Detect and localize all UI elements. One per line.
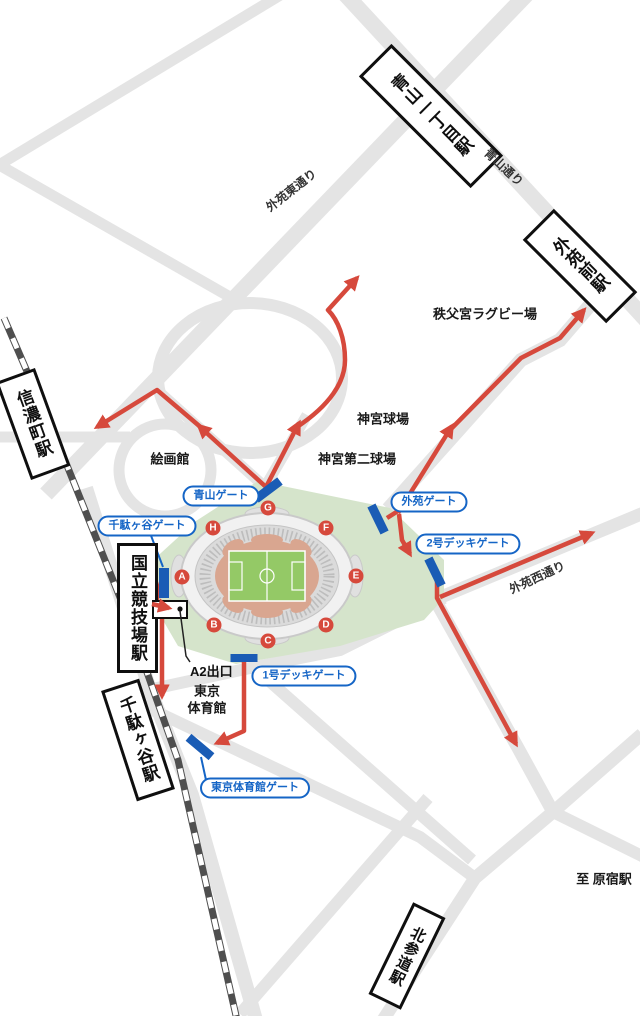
road-northwest xyxy=(0,0,282,168)
gate-bar-sendagaya xyxy=(159,568,169,598)
a2-exit-label: A2出口 xyxy=(190,661,233,680)
stadium-gate-h: H xyxy=(206,521,221,536)
road-gaien-higashi-dori xyxy=(46,0,527,494)
label-to-harajuku: 至 原宿駅 xyxy=(576,869,632,888)
gate-pill-sendagaya: 千駄ヶ谷ゲート xyxy=(98,516,197,537)
stadium-gate-d: D xyxy=(319,618,334,633)
gate-pill-aoyama-label: 青山ゲート xyxy=(194,490,249,502)
a2-exit-box xyxy=(152,600,188,619)
station-kokuritsu-label: 国立競技場駅 xyxy=(125,554,150,662)
stadium-gate-c: C xyxy=(261,634,276,649)
map-base-canvas xyxy=(0,0,640,1016)
label-kaigakan: 絵画館 xyxy=(150,449,189,468)
gate-pill-deck1: 1号デッキゲート xyxy=(251,666,356,687)
label-tokyo-gym-line2: 体育館 xyxy=(187,698,226,717)
gate-pill-deck2: 2号デッキゲート xyxy=(415,534,520,555)
stadium-gate-e: E xyxy=(349,569,364,584)
route-aoyama-loop-2 xyxy=(297,278,357,427)
gate-pill-gym: 東京体育館ゲート xyxy=(200,778,310,799)
road-to-loop xyxy=(0,162,237,301)
route-deck2-south xyxy=(437,577,516,744)
stadium-gate-g: G xyxy=(261,501,276,516)
label-chichibunomiya-rugby: 秩父宮ラグビー場 xyxy=(433,304,537,323)
road-southeast-branch xyxy=(553,812,640,858)
gate-pill-sendagaya-label: 千駄ヶ谷ゲート xyxy=(109,520,186,532)
stadium-area-map: { "map": { "stations": [ {"name": "青山一丁目… xyxy=(0,0,640,1016)
gate-pill-deck2-label: 2号デッキゲート xyxy=(426,538,509,550)
gate-pill-deck1-label: 1号デッキゲート xyxy=(262,670,345,682)
stadium-gate-a: A xyxy=(175,570,190,585)
gate-pill-aoyama: 青山ゲート xyxy=(183,486,260,507)
stadium-gate-b: B xyxy=(207,618,222,633)
label-jingu-second-stadium: 神宮第二球場 xyxy=(318,449,396,468)
stadium-gate-f: F xyxy=(319,521,334,536)
gate-bar-deck1 xyxy=(231,654,258,662)
label-jingu-stadium: 神宮球場 xyxy=(357,409,409,428)
gate-pill-gaien: 外苑ゲート xyxy=(391,492,468,513)
gate-pill-gaien-label: 外苑ゲート xyxy=(402,496,457,508)
road-deck-south xyxy=(250,664,472,860)
gate-pill-gym-label: 東京体育館ゲート xyxy=(211,782,299,794)
stadium-pitch xyxy=(229,551,305,601)
